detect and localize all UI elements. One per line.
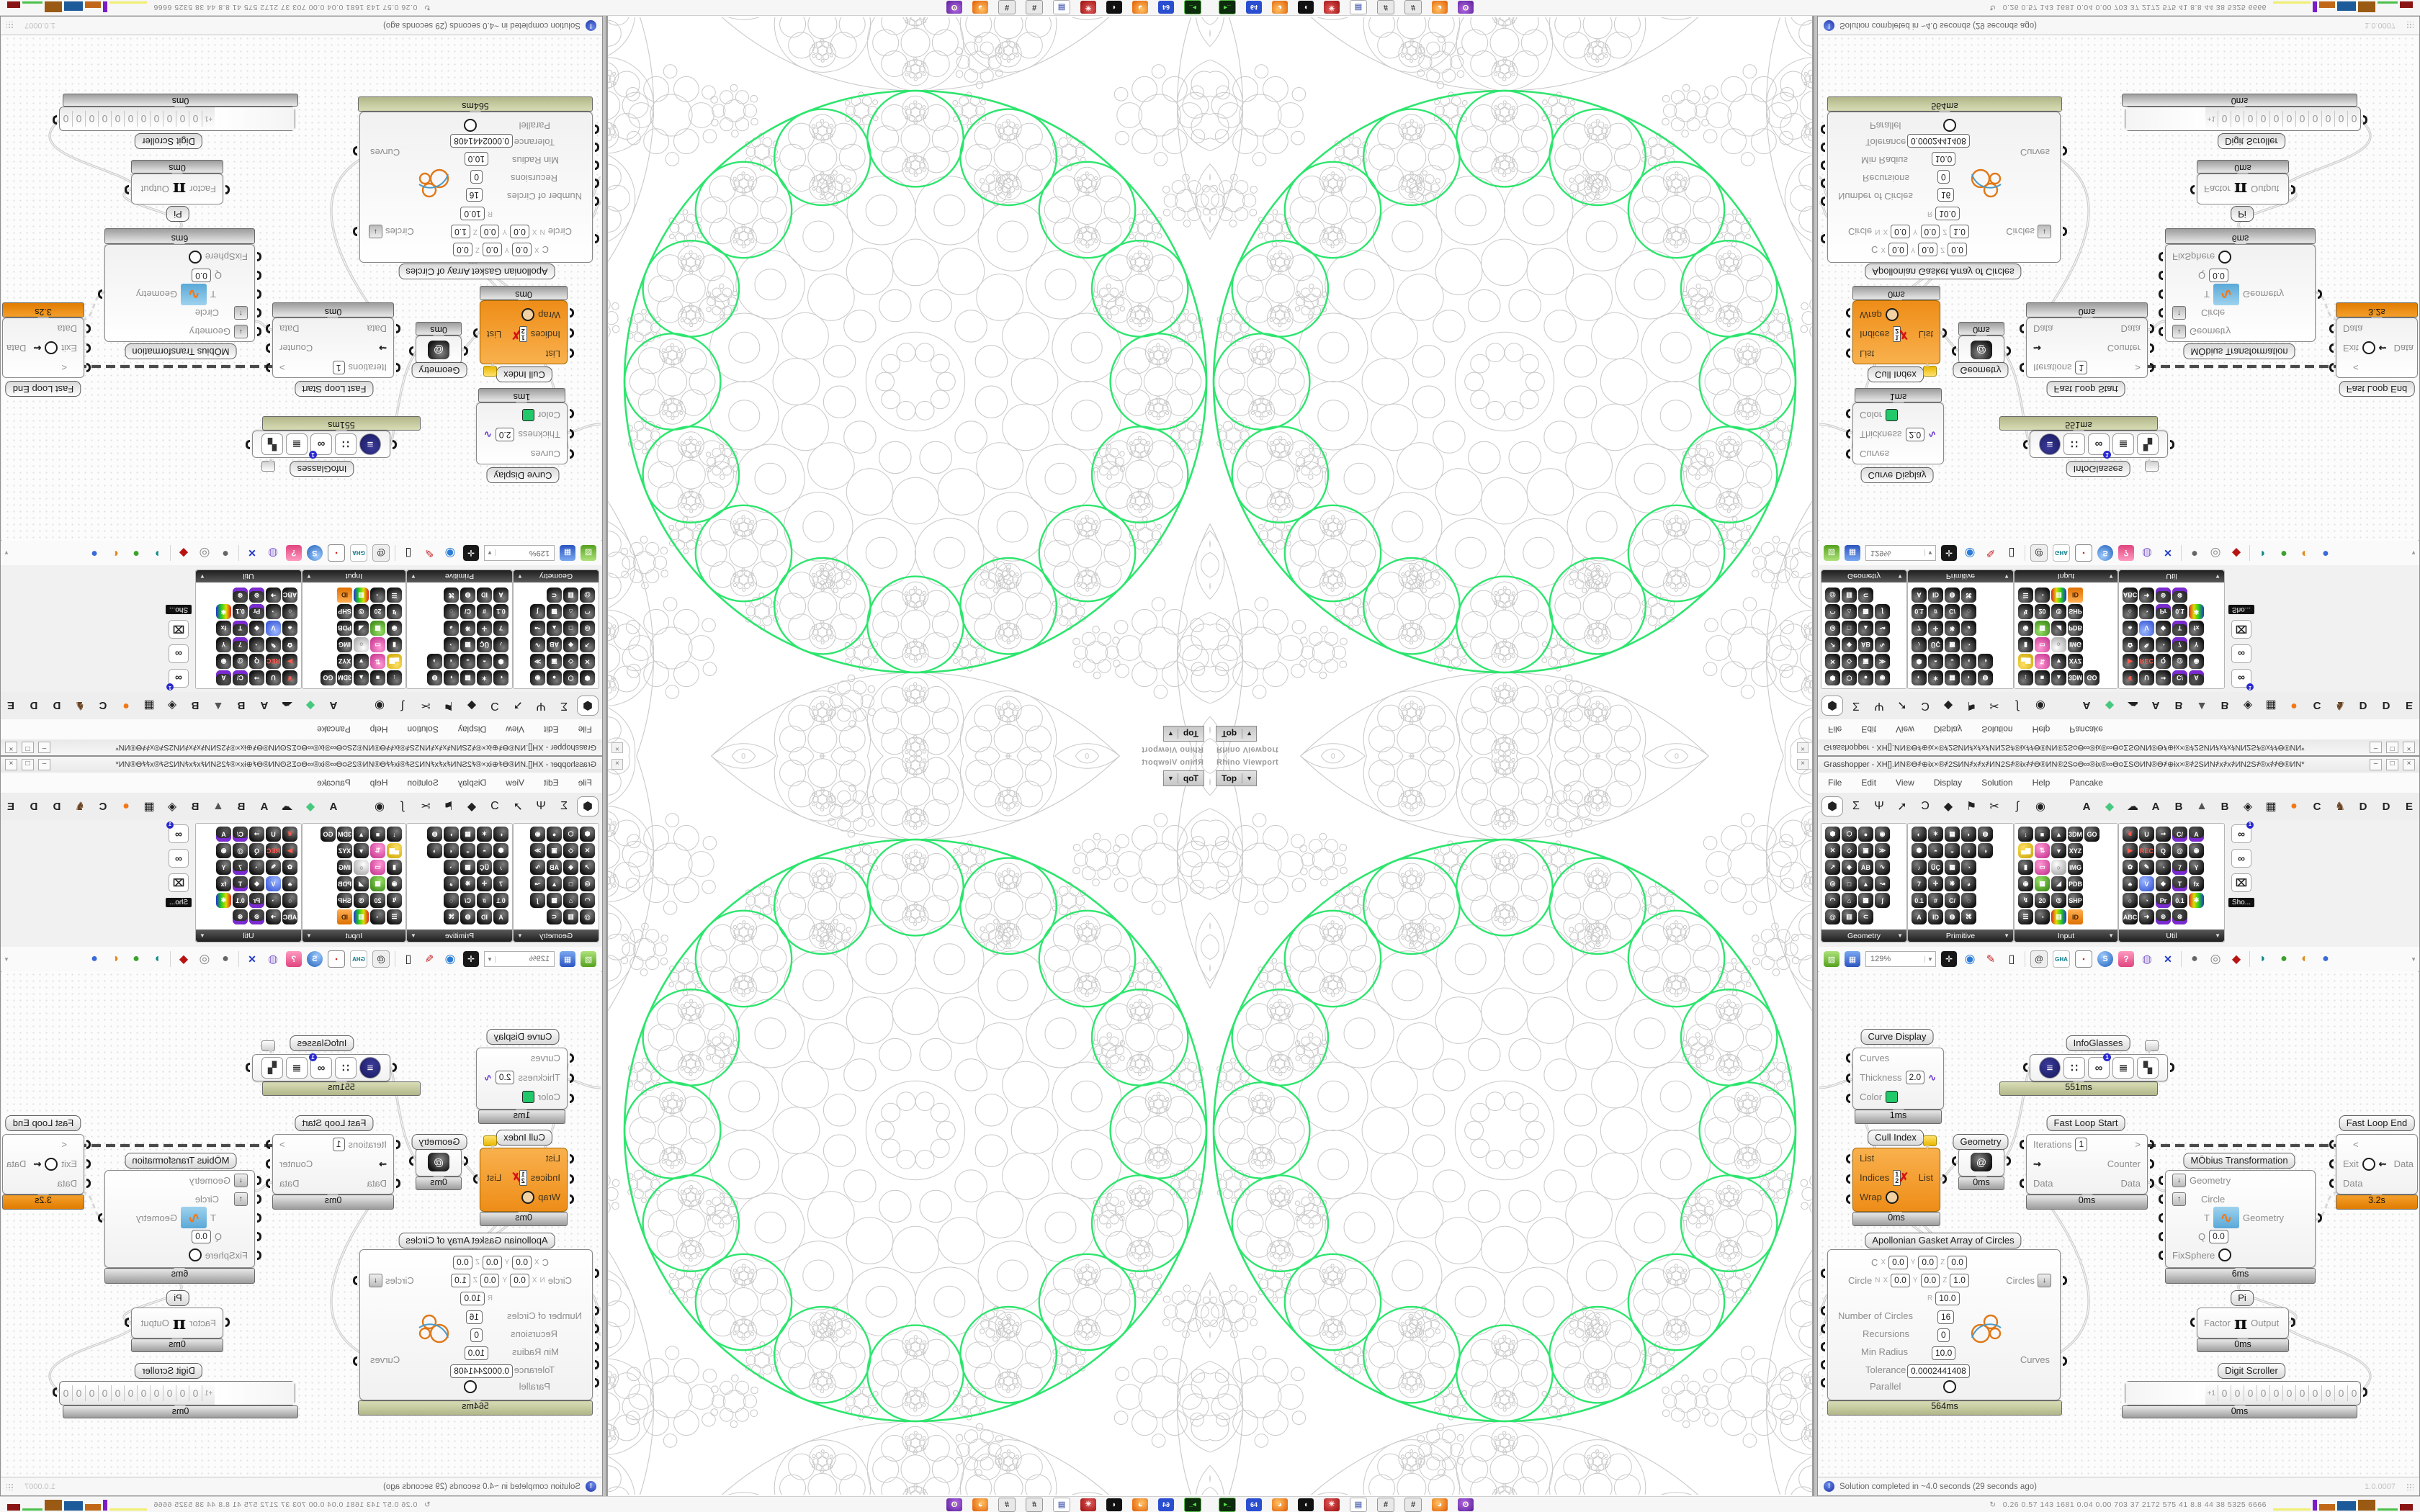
gha-assembler-icon[interactable]: GHA (2053, 544, 2070, 562)
preview-blue-icon[interactable]: ● (2318, 545, 2334, 561)
component-icon[interactable]: GO (2084, 827, 2099, 842)
component-icon[interactable]: @ (1825, 588, 1840, 603)
component-icon[interactable]: ♣ (282, 876, 297, 891)
component-icon[interactable]: ▲ (2051, 827, 2066, 842)
palette-dropdown-icon[interactable]: ▼ (200, 573, 205, 580)
cull-note-bubble-icon[interactable] (1923, 1135, 1937, 1146)
menu-edit[interactable]: Edit (544, 778, 559, 788)
component-icon[interactable]: ▲ (354, 670, 369, 685)
component-icon[interactable]: C/ (233, 827, 248, 842)
tab-params[interactable]: ⬢ (577, 796, 599, 816)
digit-cell[interactable]: 0 (73, 1385, 86, 1401)
zoom-extents-icon[interactable]: ✛ (1941, 545, 1957, 561)
tab-vector[interactable]: ➚ (1892, 696, 1912, 715)
component-icon[interactable]: C/ (460, 893, 475, 908)
component-icon[interactable]: ▮ (2018, 637, 2033, 652)
component-icon[interactable]: ▩ (1945, 860, 1960, 875)
component-icon[interactable]: Pr (249, 893, 264, 908)
open-file-icon[interactable]: ▨ (581, 545, 596, 561)
palette-label-input[interactable]: Input▼ (2015, 930, 2117, 942)
component-icon[interactable]: # (1928, 893, 1943, 908)
component-icon[interactable]: XYZ (2068, 654, 2083, 669)
canvas-window-icon[interactable]: ▪ (328, 950, 345, 968)
menu-help[interactable]: Help (2033, 724, 2051, 734)
viewport-top-tab[interactable]: Top ▼ (1163, 770, 1204, 786)
component-icon[interactable]: □ (563, 621, 578, 636)
q-value[interactable]: 0.0 (2209, 1230, 2228, 1243)
gha-assembler-icon[interactable]: GHA (350, 544, 367, 562)
flatten-down-icon[interactable]: ↓ (2172, 325, 2186, 339)
component-icon[interactable]: XYZ (337, 843, 352, 858)
component-icon[interactable]: ▶ (282, 654, 297, 669)
box-display-icon[interactable]: ▯ (400, 951, 416, 967)
tab-params[interactable]: ⬢ (1821, 796, 1843, 816)
component-icon[interactable]: ⊚ (249, 588, 264, 603)
component-icon[interactable]: ■ (2035, 670, 2050, 685)
component-icon[interactable]: ◆ (249, 876, 264, 891)
tab-curve[interactable]: Ɔ (1915, 696, 1935, 715)
tab-plugin-b2[interactable]: B (185, 797, 205, 816)
component-icon[interactable]: ID (477, 588, 492, 603)
wrap-toggle[interactable] (521, 1191, 534, 1204)
preview-green-icon[interactable]: ● (128, 951, 144, 967)
mobius-node[interactable]: ↓ Geometry ↑ Circle T ∿ Geometry Q 0.0 F… (2165, 244, 2316, 342)
component-icon[interactable]: ❦ (282, 670, 297, 685)
component-icon[interactable]: ≫ (530, 843, 545, 858)
component-icon[interactable]: ⬡ (563, 670, 578, 685)
component-icon[interactable]: ◎ (354, 893, 369, 908)
component-icon[interactable]: T (2172, 621, 2187, 636)
palette-label-geometry[interactable]: Geometry▼ (1821, 570, 1906, 582)
component-icon[interactable]: ☰ (2018, 588, 2033, 603)
fast-loop-end-node[interactable]: < Exit ⇜ Data Data (2, 1134, 84, 1194)
component-icon[interactable]: ▲ (354, 827, 369, 842)
component-icon[interactable]: ◔ (249, 637, 264, 652)
component-icon[interactable]: SHP (2068, 893, 2083, 908)
tab-plugin-a2[interactable]: A (2146, 797, 2166, 816)
component-icon[interactable]: @ (233, 843, 248, 858)
idea-bulb-icon[interactable]: ◍ (2139, 951, 2155, 967)
infoglasses-button[interactable]: ∞1 (2088, 1057, 2110, 1079)
fixsphere-toggle[interactable] (189, 251, 202, 264)
digit-cell[interactable]: 0 (176, 111, 189, 127)
parallel-toggle[interactable] (1943, 1380, 1956, 1393)
component-icon[interactable]: IMG (2068, 637, 2083, 652)
digit-cell[interactable]: 0 (176, 1385, 189, 1401)
component-icon[interactable]: ◓ (1928, 843, 1943, 858)
minimize-button[interactable]: – (2370, 742, 2382, 753)
component-icon[interactable]: ❦ (2123, 827, 2138, 842)
component-icon[interactable]: ID (337, 909, 352, 924)
digit-cell[interactable]: 0 (2295, 111, 2308, 127)
component-icon[interactable]: ❋ (460, 876, 475, 891)
tab-transform[interactable]: ʃ (2007, 797, 2027, 816)
infoglasses-bubble-icon[interactable] (2145, 461, 2159, 472)
component-icon[interactable]: T (2172, 876, 2187, 891)
component-icon[interactable]: □ (1842, 876, 1857, 891)
component-icon[interactable]: □ (563, 876, 578, 891)
component-icon[interactable]: ⬢ (493, 843, 508, 858)
component-icon[interactable]: ■ (370, 670, 385, 685)
viewport-top-tab[interactable]: Top ▼ (1216, 770, 1257, 786)
component-icon[interactable]: ♪ (493, 860, 508, 875)
preview-green-icon[interactable]: ● (2276, 545, 2292, 561)
component-icon[interactable]: ◖ (1961, 843, 1976, 858)
zoom-dropdown-icon[interactable]: ▼ (1924, 956, 1935, 963)
component-icon[interactable]: ◔ (2139, 893, 2154, 908)
digit-cell[interactable]: 0 (60, 1385, 73, 1401)
q-value[interactable]: 0.0 (192, 269, 211, 283)
infoglasses-goggles-icon[interactable]: ∞ (2231, 849, 2251, 868)
exit-toggle[interactable] (2362, 1158, 2375, 1171)
component-icon[interactable]: ▩ (547, 893, 562, 908)
component-icon[interactable]: 20 (370, 604, 385, 619)
taskbar-dosbox-icon[interactable]: 64 (1246, 1, 1262, 14)
component-icon[interactable]: ◍ (460, 588, 475, 603)
tab-display[interactable]: ◉ (2030, 696, 2051, 715)
tab-vector[interactable]: ➚ (508, 797, 528, 816)
component-icon[interactable]: ↝ (1875, 876, 1890, 891)
component-icon[interactable]: ⇅ (370, 843, 385, 858)
component-icon[interactable]: A (2189, 827, 2204, 842)
digit-cell[interactable]: 0 (99, 1385, 112, 1401)
circles-flatten-icon[interactable]: ↓ (2038, 225, 2051, 238)
palette-dropdown-icon[interactable]: ▼ (517, 573, 523, 580)
digit-cell[interactable]: 0 (163, 111, 176, 127)
component-icon[interactable]: ◕ (444, 621, 459, 636)
component-icon[interactable]: ◒ (1945, 843, 1960, 858)
menu-view[interactable]: View (506, 724, 524, 734)
component-icon[interactable]: AB (1858, 860, 1873, 875)
resize-grip[interactable] (2406, 1483, 2414, 1490)
taskbar-dosbox-icon[interactable]: 64 (1158, 1, 1174, 14)
palette-dropdown-icon[interactable]: ▼ (2108, 932, 2114, 939)
component-icon[interactable]: ✿ (2123, 637, 2138, 652)
close-button[interactable]: × (2403, 759, 2415, 770)
component-icon[interactable]: ▼ (354, 843, 369, 858)
component-icon[interactable]: REC (2139, 654, 2154, 669)
infoglasses-goggles-icon[interactable]: ∞1 (2231, 824, 2251, 843)
component-icon[interactable]: Y (2189, 860, 2204, 875)
digit-cell[interactable]: 0 (125, 1385, 138, 1401)
component-icon[interactable]: ▮ (387, 860, 402, 875)
taskbar-glyph-app-icon[interactable]: # (1026, 1498, 1043, 1512)
tab-plugin-cloud[interactable]: ☁ (277, 797, 297, 816)
fast-loop-start-node[interactable]: Iterations 1 > ⇝ Counter Data Data (272, 1134, 394, 1194)
component-icon[interactable]: ↗ (1825, 637, 1840, 652)
component-icon[interactable]: REC (266, 843, 281, 858)
tab-plugin-cloud[interactable]: ☁ (2123, 696, 2143, 715)
component-icon[interactable]: ABC (2123, 588, 2138, 603)
component-icon[interactable]: 7 (233, 860, 248, 875)
component-icon[interactable]: 7 (2172, 860, 2187, 875)
component-icon[interactable]: ◎ (2051, 893, 2066, 908)
component-icon[interactable]: ▭ (370, 637, 385, 652)
tab-maths[interactable]: Σ (554, 797, 574, 816)
component-icon[interactable]: Q (2156, 654, 2171, 669)
viewport-close-button[interactable]: × (611, 742, 623, 753)
fast-loop-start-node[interactable]: Iterations 1 > ⇝ Counter Data Data (2026, 318, 2148, 378)
component-icon[interactable]: ⌂ (1842, 604, 1857, 619)
palette-dropdown-icon[interactable]: ▼ (411, 573, 416, 580)
component-icon[interactable]: ID (1928, 588, 1943, 603)
zoom-select[interactable]: 129%▼ (1865, 951, 1936, 967)
palette-label-geometry[interactable]: Geometry▼ (514, 930, 599, 942)
menu-help[interactable]: Help (2033, 778, 2051, 788)
tab-plugin-gem[interactable]: ◆ (2099, 696, 2120, 715)
component-icon[interactable]: 0.1 (2172, 604, 2187, 619)
grasshopper-canvas[interactable]: Curve Display Curves Thickness 2.0 ∿ Col… (2, 34, 601, 541)
preview-eye-icon[interactable]: ◉ (1962, 545, 1978, 561)
component-icon[interactable]: ◉ (216, 843, 231, 858)
digit-cell[interactable]: 0 (86, 1385, 99, 1401)
component-icon[interactable]: V (2139, 621, 2154, 636)
infoglasses-goggles-icon[interactable]: ∞ (2231, 644, 2251, 663)
component-icon[interactable]: ◎ (1825, 621, 1840, 636)
component-icon[interactable]: ✶ (1928, 827, 1943, 842)
tab-display[interactable]: ◉ (2030, 797, 2051, 816)
component-icon[interactable]: ◖ (1961, 654, 1976, 669)
parallel-toggle[interactable] (1943, 119, 1956, 132)
taskbar-owl-app-icon[interactable]: ʘ (946, 1, 962, 14)
component-icon[interactable]: ◆ (2156, 876, 2171, 891)
component-icon[interactable]: ⊂ (1858, 588, 1873, 603)
minimize-button[interactable]: – (2370, 759, 2382, 770)
component-icon[interactable]: fx (216, 621, 231, 636)
grasshopper-canvas[interactable]: Curve Display Curves Thickness 2.0 ∿ Col… (1819, 34, 2418, 541)
menu-view[interactable]: View (1896, 724, 1914, 734)
component-icon[interactable]: ◉ (530, 827, 545, 842)
preview-green-icon[interactable]: ● (2276, 951, 2292, 967)
taskbar-terminal-icon[interactable]: ▸_ (1219, 1498, 1236, 1512)
component-icon[interactable]: ⬢ (1825, 670, 1840, 685)
component-icon[interactable]: 3DM (337, 670, 352, 685)
component-icon[interactable]: ♣ (282, 621, 297, 636)
preview-blue-icon[interactable]: ● (86, 545, 102, 561)
digit-cell[interactable]: 0 (2347, 111, 2360, 127)
component-icon[interactable]: ◕ (444, 876, 459, 891)
component-icon[interactable]: XYZ (337, 654, 352, 669)
taskbar-glyph-app-icon[interactable]: # (1377, 1498, 1394, 1512)
component-icon[interactable]: ➞ (2156, 827, 2171, 842)
zoom-extents-icon[interactable]: ✛ (463, 545, 479, 561)
toolbar-overflow-icon[interactable]: ▼ (4, 550, 9, 557)
taskbar-notepad-icon[interactable]: ▤ (1350, 1498, 1367, 1512)
component-icon[interactable]: IMG (337, 637, 352, 652)
viewport-top-tab[interactable]: Top ▼ (1216, 726, 1257, 742)
menu-pancake[interactable]: Pancake (2069, 778, 2103, 788)
component-icon[interactable]: V (266, 621, 281, 636)
preview-blue-icon[interactable]: ● (86, 951, 102, 967)
idea-bulb-icon[interactable]: ◍ (265, 545, 281, 561)
component-icon[interactable]: ● (1858, 670, 1873, 685)
iterations-value[interactable]: 1 (2075, 1138, 2087, 1151)
component-icon[interactable]: ◔ (249, 860, 264, 875)
component-icon[interactable]: C/ (233, 670, 248, 685)
tab-plugin-d2[interactable]: D (24, 797, 44, 816)
infoglasses-button[interactable]: ≡ (359, 1057, 381, 1079)
ring-spheres-icon[interactable]: ◎ (197, 951, 212, 967)
menu-display[interactable]: Display (458, 778, 486, 788)
preview-orange-icon[interactable]: ◐ (107, 951, 123, 967)
grasshopper-canvas[interactable]: Curve Display Curves Thickness 2.0 ∿ Col… (2, 971, 601, 1478)
infoglasses-node[interactable]: ≡∷∞1≣▚ (2030, 1054, 2168, 1081)
component-icon[interactable]: ◑ (427, 654, 442, 669)
component-icon[interactable]: 0.1 (1912, 893, 1927, 908)
viewport-tab-dropdown-icon[interactable]: ▼ (1242, 730, 1256, 737)
component-icon[interactable]: ▭ (2035, 637, 2050, 652)
component-icon[interactable]: ✶ (477, 827, 492, 842)
component-icon[interactable]: AB (547, 637, 562, 652)
preview-green-icon[interactable]: ● (128, 545, 144, 561)
component-icon[interactable]: C/ (2172, 827, 2187, 842)
palette-dropdown-icon[interactable]: ▼ (1897, 932, 1903, 939)
infoglasses-bubble-icon[interactable] (261, 1040, 275, 1051)
component-icon[interactable]: SHP (2068, 604, 2083, 619)
taskbar-rhino-icon[interactable]: ◖ (1298, 1498, 1314, 1511)
thickness-value[interactable]: 2.0 (1906, 1071, 1925, 1084)
component-icon[interactable]: PDB (2068, 621, 2083, 636)
preview-orange-icon[interactable]: ◐ (107, 545, 123, 561)
wrap-toggle[interactable] (1886, 309, 1899, 322)
component-icon[interactable]: ◉ (2189, 654, 2204, 669)
tab-plugin-d1[interactable]: D (2353, 696, 2373, 715)
component-icon[interactable]: ⬢ (580, 670, 595, 685)
resize-grip[interactable] (6, 22, 14, 30)
component-icon[interactable]: ◑ (1978, 654, 1993, 669)
zoom-extents-icon[interactable]: ✛ (1941, 951, 1957, 967)
tab-plugin-grid1[interactable]: ▦ (139, 797, 159, 816)
palette-label-util[interactable]: Util▼ (2119, 930, 2224, 942)
component-icon[interactable]: ▶ (282, 843, 297, 858)
digit-cell[interactable]: 0 (2334, 111, 2347, 127)
component-icon[interactable]: ✎ (2139, 860, 2154, 875)
component-icon[interactable]: ▦ (460, 670, 475, 685)
save-file-icon[interactable]: ▦ (560, 951, 575, 967)
digit-cell[interactable]: 0 (2295, 1385, 2308, 1401)
infoglasses-node[interactable]: ≡∷∞1≣▚ (252, 431, 390, 458)
color-swatch[interactable] (522, 1091, 534, 1103)
component-icon[interactable]: ◉ (2189, 843, 2204, 858)
digit-cell[interactable]: 0 (2231, 111, 2244, 127)
menu-display[interactable]: Display (458, 724, 486, 734)
fast-loop-start-node[interactable]: Iterations 1 > ⇝ Counter Data Data (272, 318, 394, 378)
taskbar-red-app-icon[interactable]: ✳ (1080, 1498, 1096, 1511)
component-icon[interactable]: ▲ (1858, 621, 1873, 636)
component-icon[interactable]: ▦ (1945, 670, 1960, 685)
viewport-top-tab[interactable]: Top ▼ (1163, 726, 1204, 742)
menu-solution[interactable]: Solution (407, 724, 438, 734)
preview-eye-icon[interactable]: ◉ (442, 545, 458, 561)
component-icon[interactable]: ⊂ (1858, 909, 1873, 924)
menu-file[interactable]: File (578, 778, 592, 788)
digit-cell[interactable]: 0 (2269, 1385, 2282, 1401)
infoglasses-goggles-icon[interactable]: ∞1 (169, 824, 189, 843)
component-icon[interactable]: ≫ (1875, 843, 1890, 858)
save-file-icon[interactable]: ▦ (560, 545, 575, 561)
cull-note-bubble-icon[interactable] (483, 1135, 497, 1146)
zoom-extents-icon[interactable]: ✛ (463, 951, 479, 967)
component-icon[interactable]: ↓ (387, 670, 402, 685)
component-icon[interactable]: ○ (354, 637, 369, 652)
component-icon[interactable]: ▲ (1858, 876, 1873, 891)
taskbar-dosbox-icon[interactable]: 64 (1246, 1498, 1262, 1511)
component-icon[interactable]: ▲ (547, 876, 562, 891)
component-icon[interactable]: ID (2068, 588, 2083, 603)
cull-index-node[interactable]: List Indices 12✗ List Wrap (480, 300, 568, 364)
digit-cell[interactable]: 0 (163, 1385, 176, 1401)
idea-bulb-icon[interactable]: ◍ (2139, 545, 2155, 561)
infoglasses-button[interactable]: ∞1 (310, 433, 332, 455)
component-icon[interactable]: ↯ (387, 604, 402, 619)
open-file-icon[interactable]: ▨ (1824, 951, 1839, 967)
menu-display[interactable]: Display (1934, 724, 1962, 734)
taskbar-dosbox-icon[interactable]: 64 (1158, 1498, 1174, 1511)
mesh-spheres-icon[interactable]: ● (2187, 545, 2202, 561)
digit-cell[interactable]: 0 (99, 111, 112, 127)
component-icon[interactable]: ◢ (2051, 621, 2066, 636)
component-icon[interactable]: ▮ (387, 637, 402, 652)
digit-cell[interactable]: 0 (2308, 111, 2321, 127)
wrap-toggle[interactable] (1886, 1191, 1899, 1204)
tab-plugin-shield[interactable]: ◈ (2238, 797, 2258, 816)
preview-eye-icon[interactable]: ◉ (442, 951, 458, 967)
tab-transform[interactable]: ʃ (393, 797, 413, 816)
component-icon[interactable]: ◎ (2051, 604, 2066, 619)
infoglasses-goggles-icon[interactable]: ∞ (169, 849, 189, 868)
component-icon[interactable]: ↯ (2018, 893, 2033, 908)
component-icon[interactable]: ◠ (1825, 604, 1840, 619)
component-icon[interactable]: AB (547, 860, 562, 875)
component-icon[interactable]: PDB (337, 621, 352, 636)
infoglasses-button[interactable]: ▚ (2137, 1057, 2159, 1079)
digit-cell[interactable]: 0 (112, 1385, 125, 1401)
infoglasses-button[interactable]: ≡ (359, 433, 381, 455)
component-icon[interactable]: ○ (2051, 860, 2066, 875)
component-icon[interactable]: ◠ (1825, 893, 1840, 908)
component-icon[interactable]: A (216, 670, 231, 685)
component-icon[interactable]: ÜÇ (477, 860, 492, 875)
preview-blue-icon[interactable]: ● (2318, 951, 2334, 967)
mesh-spheres-icon[interactable]: ● (218, 951, 233, 967)
help-box-icon[interactable]: ? (286, 951, 302, 967)
tab-plugin-d1[interactable]: D (47, 696, 67, 715)
cluster-x-icon[interactable]: ✕ (244, 951, 260, 967)
digit-cell[interactable]: 0 (2244, 111, 2257, 127)
component-icon[interactable]: Pr (2156, 604, 2171, 619)
component-icon[interactable]: ⌂ (563, 604, 578, 619)
component-icon[interactable]: ❋ (1945, 876, 1960, 891)
component-icon[interactable]: ID (1928, 909, 1943, 924)
component-icon[interactable]: V (266, 876, 281, 891)
leaf-pair-icon[interactable]: ◗ (2255, 545, 2271, 561)
component-icon[interactable]: @ (1825, 909, 1840, 924)
component-icon[interactable]: ◉ (2018, 621, 2033, 636)
sketch-pen-icon[interactable]: ✎ (421, 951, 437, 967)
digit-scroller[interactable]: +1 00000000000 (2125, 107, 2361, 131)
search-icon[interactable]: S (2097, 951, 2113, 967)
idea-bulb-icon[interactable]: ◍ (265, 951, 281, 967)
tab-plugin-kangaroo[interactable]: ♞ (70, 797, 90, 816)
infoglasses-button[interactable]: ∞1 (2088, 433, 2110, 455)
gem-preview-icon[interactable]: ◆ (176, 545, 192, 561)
component-icon[interactable]: ↗ (580, 637, 595, 652)
tab-plugin-b2[interactable]: B (185, 696, 205, 715)
tab-mesh[interactable]: ⚑ (439, 696, 459, 715)
component-icon[interactable]: @ (2172, 843, 2187, 858)
component-icon[interactable]: ◎ (354, 604, 369, 619)
menu-solution[interactable]: Solution (1981, 778, 2012, 788)
